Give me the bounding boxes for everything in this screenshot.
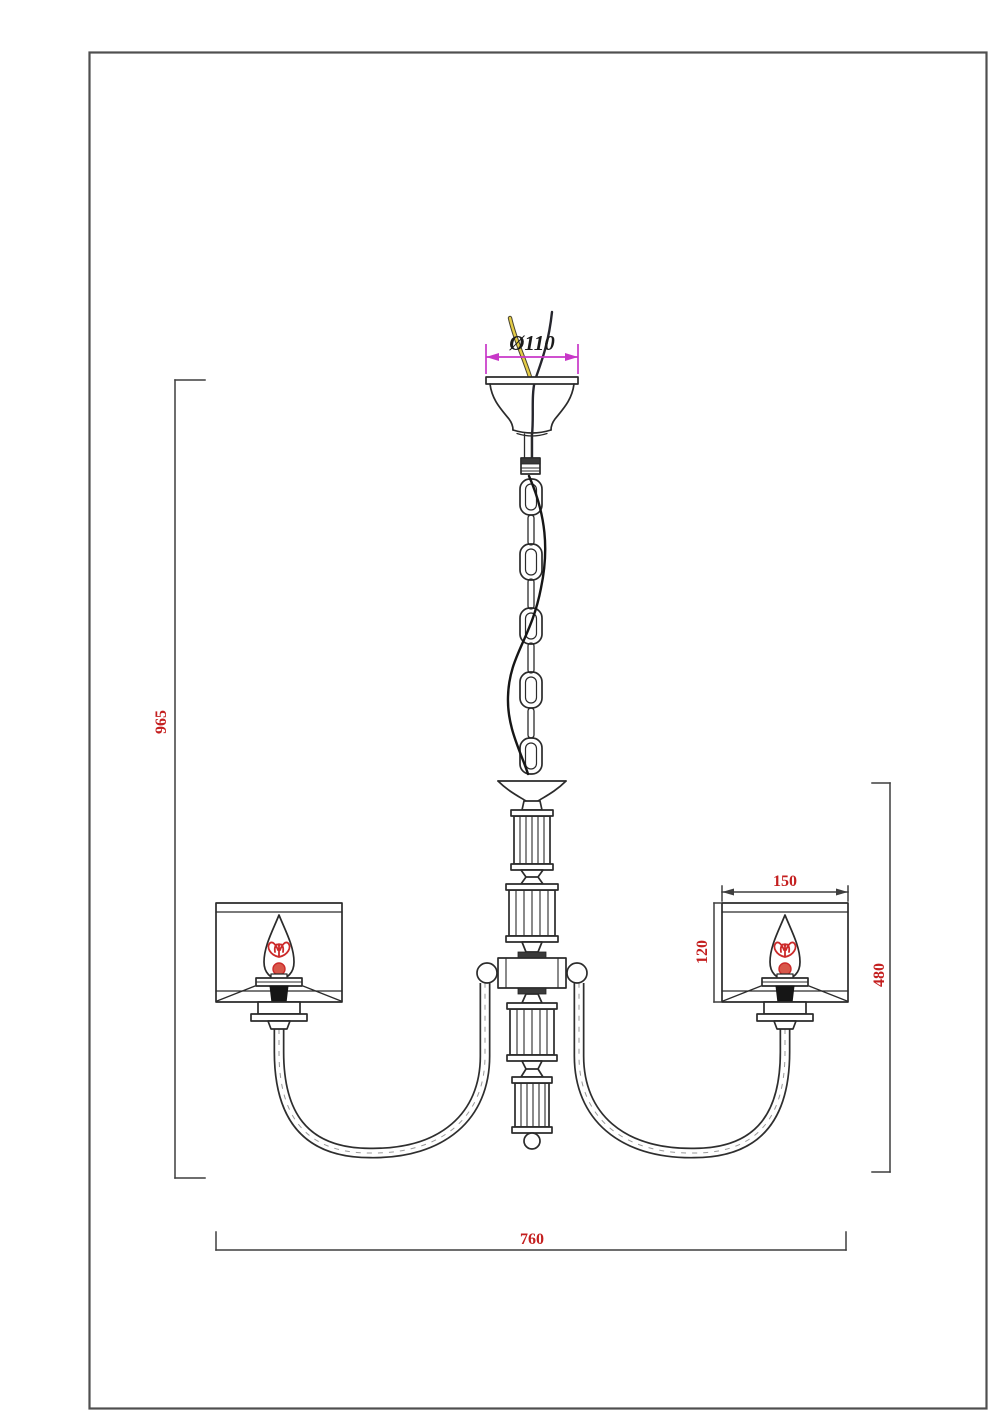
spool-2 [518, 942, 546, 958]
curved-arm-left [279, 983, 485, 1153]
chandelier-dimension-drawing: Ø110 965 480 760 150 120 [0, 0, 1000, 1414]
dim-shade-height-label: 120 [694, 940, 711, 964]
dim-canopy-diameter: Ø110 [486, 331, 578, 374]
power-cord [508, 476, 545, 774]
spool-1 [521, 870, 543, 884]
curved-arm-right [579, 983, 785, 1153]
drawing-frame [90, 53, 987, 1409]
crystal-cylinder-1 [511, 810, 553, 870]
dim-body-height: 480 [871, 783, 890, 1172]
dim-overall-height: 965 [153, 380, 205, 1178]
arm-hub [477, 958, 587, 988]
dim-body-height-label: 480 [871, 963, 888, 987]
suspension-chain [520, 479, 542, 774]
dim-canopy-diameter-label: Ø110 [508, 331, 555, 355]
technical-drawing-page: Ø110 965 480 760 150 120 [0, 0, 1000, 1414]
crystal-cylinder-2 [506, 884, 558, 942]
hub-ball-left [477, 963, 497, 983]
dim-shade-height: 120 [694, 903, 721, 1002]
dim-shade-width-label: 150 [773, 873, 797, 890]
crystal-cylinder-3 [507, 1003, 557, 1061]
bottom-finial [524, 1133, 540, 1149]
dim-overall-height-label: 965 [153, 710, 170, 734]
column-top-flare [498, 781, 566, 810]
dim-overall-width-label: 760 [520, 1231, 544, 1248]
spool-4 [521, 1061, 543, 1077]
dim-shade-width: 150 [722, 873, 848, 901]
dim-overall-width: 760 [216, 1231, 846, 1250]
crystal-column [477, 781, 587, 1149]
spool-3 [518, 988, 546, 1003]
right-lamp [722, 903, 848, 1029]
left-lamp [216, 903, 342, 1029]
crystal-cylinder-4 [512, 1077, 552, 1133]
hub-ball-right [567, 963, 587, 983]
